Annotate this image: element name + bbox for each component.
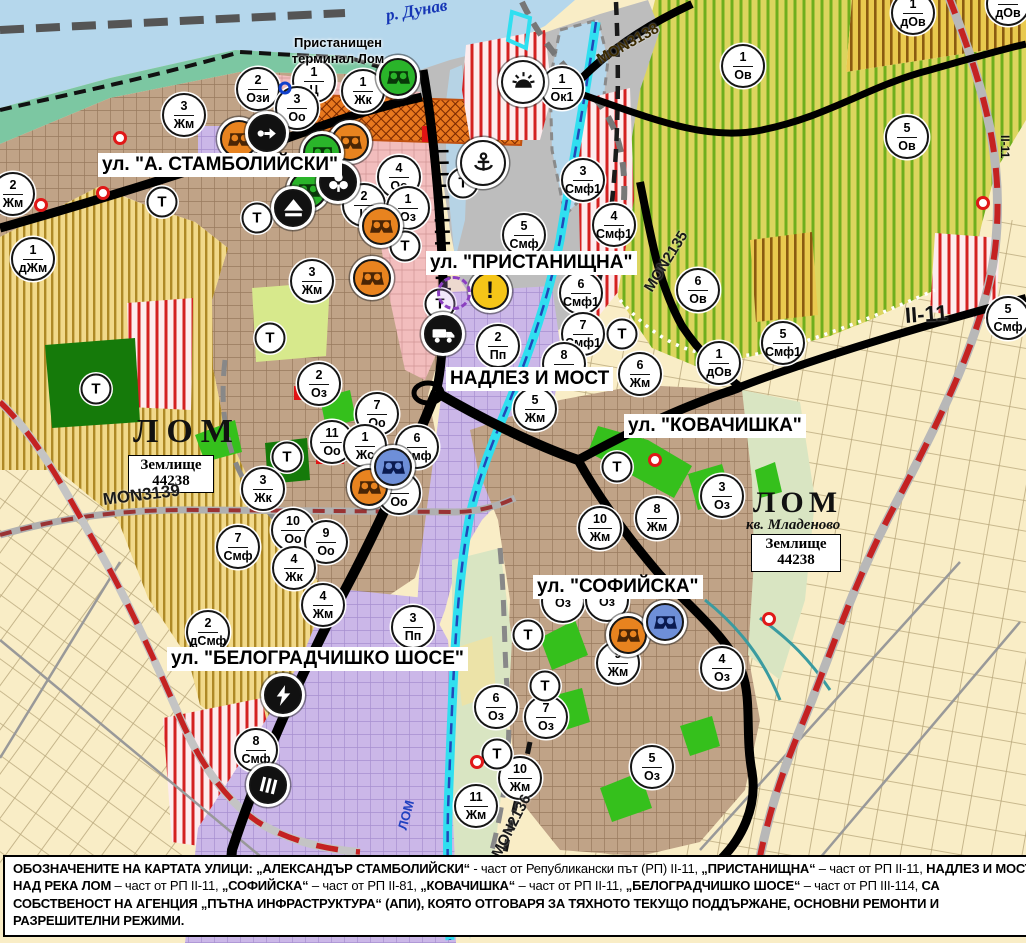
forest-patch	[265, 438, 310, 484]
legend-note-box: ОБОЗНАЧЕНИТЕ НА КАРТАТА УЛИЦИ: „АЛЕКСАНД…	[3, 855, 1026, 937]
zoning-map-screenshot: 2Ози1Ц3Оо1Жк1Ок11Ов1дОв1дОв3Жм2Жм1дЖм3Жм…	[0, 0, 1026, 943]
production-zone-small	[198, 126, 232, 156]
legend-note-text: ОБОЗНАЧЕНИТЕ НА КАРТАТА УЛИЦИ: „АЛЕКСАНД…	[13, 860, 1026, 930]
orchard-zone-patch	[750, 232, 818, 322]
map-canvas[interactable]	[0, 0, 1026, 943]
greenery-light-patch	[252, 282, 330, 362]
smf-zone-port-west	[462, 30, 552, 140]
forest-patch	[45, 338, 140, 428]
terrace-patch	[455, 636, 496, 706]
